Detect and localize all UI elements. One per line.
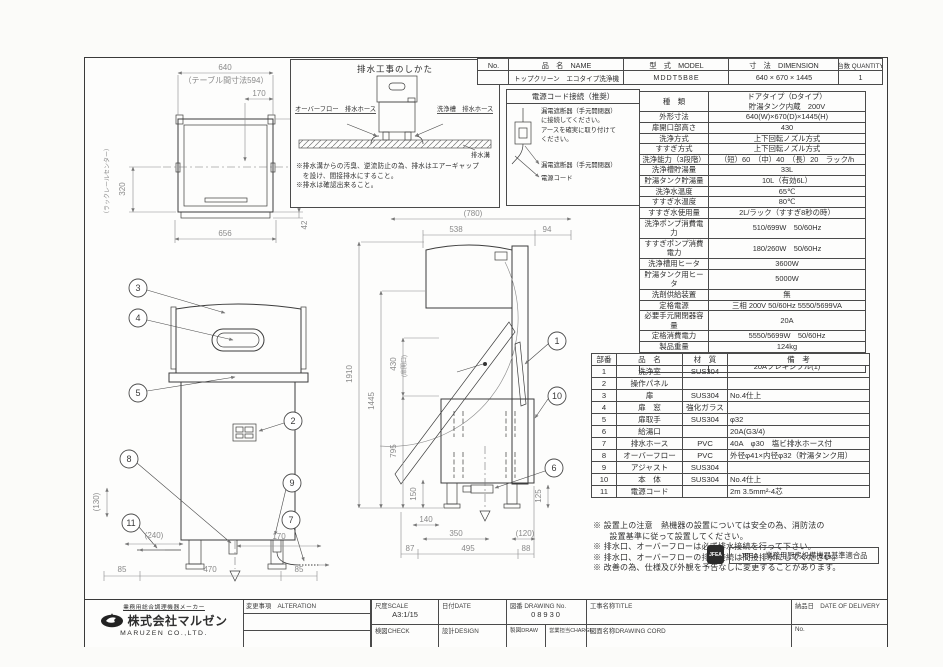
table-cell: PVC xyxy=(683,450,728,462)
table-cell: SUS304 xyxy=(683,474,728,486)
svg-text:2: 2 xyxy=(290,416,295,426)
table-cell: SUS304 xyxy=(683,462,728,474)
delivery-date-cell: 納品日 DATE OF DELIVERY xyxy=(791,600,887,624)
power-cord-box: 電源コード接続（推奨） 漏電遮断器（手元開閉器） に接続してください。 アースを… xyxy=(506,89,640,206)
table-cell: 8 xyxy=(592,450,617,462)
table-row: 外形寸法640(W)×670(D)×1445(H) xyxy=(640,112,866,123)
table-cell: 洗浄ポンプ消費電力 xyxy=(640,218,709,238)
side-view-dimensions: (780) 538 94 1910 1445 430 (扉開口) 795 150 xyxy=(345,209,571,559)
table-row: 洗浄水温度65℃ xyxy=(640,186,866,197)
table-row: 洗浄槽貯湯量33L xyxy=(640,165,866,176)
check-cell: 検図CHECK xyxy=(371,624,438,647)
note-line: ※排水溝からの汚臭、逆流防止の為、排水はエアーギャップ xyxy=(296,162,496,172)
table-row: すすぎ水使用量2L/ラック（すすぎ8秒の時） xyxy=(640,207,866,218)
table-cell: 2L/ラック（すすぎ8秒の時） xyxy=(709,207,866,218)
dim-1910: 1910 xyxy=(345,365,354,383)
dim-42: 42 xyxy=(300,220,309,229)
note-line: 設置基準に従って設置してください。 xyxy=(593,532,885,543)
svg-text:10: 10 xyxy=(552,391,562,401)
quantity-value: 1 xyxy=(838,70,883,85)
side-view-drawing: 1 10 6 (780) 538 94 1910 1445 430 (扉開口) xyxy=(335,206,607,598)
front-view-machine xyxy=(137,304,329,581)
table-cell: 扉取手 xyxy=(617,414,683,426)
callout-3: 3 xyxy=(129,279,147,297)
callout-9: 9 xyxy=(283,474,301,492)
dim-140: 140 xyxy=(419,515,433,524)
title-block: 業務用総合調理機器メーカー 株式会社マルゼン MARUZEN CO.,LTD. … xyxy=(85,599,887,647)
table-cell: 電源コード xyxy=(617,486,683,498)
dim-85-left: 85 xyxy=(118,565,127,574)
table-cell: 定格消費電力 xyxy=(640,331,709,342)
table-cell: 510/699W 50/60Hz xyxy=(709,218,866,238)
callout-6: 6 xyxy=(545,459,563,477)
table-row: 洗浄槽用ヒータ3600W xyxy=(640,259,866,270)
table-cell: 124kg xyxy=(709,342,866,353)
table-row: 定格電源三相 200V 50/60Hz 5550/5699VA xyxy=(640,300,866,311)
dim-795: 795 xyxy=(389,444,398,458)
table-row: すすぎ方式上下回転ノズル方式 xyxy=(640,144,866,155)
table-cell: 洗浄槽貯湯量 xyxy=(640,165,709,176)
table-cell: 430 xyxy=(709,122,866,133)
table-cell: SUS304 xyxy=(683,366,728,378)
model-number: MDDT5B8E xyxy=(623,70,730,85)
table-row: 3扉SUS304No.4仕上 xyxy=(592,390,870,402)
construction-title-label: 工事名称TITLE xyxy=(590,601,788,610)
alteration-label: 変更事項 ALTERATION xyxy=(243,600,370,614)
table-row: 6給湯口20A(G3/4) xyxy=(592,426,870,438)
table-row: 洗剤供給装置無 xyxy=(640,289,866,300)
drawing-cord-label: 図面名称DRAWING CORD xyxy=(590,626,788,635)
table-cell: ドアタイプ（Dタイプ） 貯湯タンク内蔵 200V xyxy=(709,92,866,112)
alteration-row-2 xyxy=(243,631,370,648)
svg-text:9: 9 xyxy=(289,478,294,488)
callout-11: 11 xyxy=(122,514,140,532)
power-box-body-text: 漏電遮断器（手元開閉器） に接続してください。 アースを確実に取り付けて くださ… xyxy=(541,107,637,145)
dim-656: 656 xyxy=(218,229,232,238)
table-row: 洗浄能力（3段階）（短）60 （中）40 （長）20 ラック/h xyxy=(640,154,866,165)
table-row: 8オーバーフローPVC外径φ41×内径φ32（貯湯タンク用） xyxy=(592,450,870,462)
svg-text:3: 3 xyxy=(135,283,140,293)
table-cell xyxy=(728,366,870,378)
table-cell: 10L（有効6L） xyxy=(709,176,866,187)
table-cell: No.4仕上 xyxy=(728,474,870,486)
scale-label: 尺度SCALE xyxy=(375,601,435,610)
dim-85-right: 85 xyxy=(295,565,304,574)
dim-240: (240) xyxy=(145,531,164,540)
dim-538: 538 xyxy=(449,225,463,234)
table-cell: 外径φ41×内径φ32（貯湯タンク用） xyxy=(728,450,870,462)
maker-tagline: 業務用総合調理機器メーカー xyxy=(85,602,243,611)
dim-780: (780) xyxy=(464,209,483,218)
svg-text:7: 7 xyxy=(288,515,293,525)
table-cell: 洗浄室 xyxy=(617,366,683,378)
table-row: 9アジャストSUS304 xyxy=(592,462,870,474)
note-line: ※ 設置上の注意 熱機器の設置については安全の為、消防法の xyxy=(593,521,885,532)
table-cell: 6 xyxy=(592,426,617,438)
side-view-callouts: 1 10 6 xyxy=(495,332,566,488)
dim-130: (130) xyxy=(92,492,101,511)
table-cell: 20A xyxy=(709,311,866,331)
table-cell xyxy=(728,402,870,414)
table-cell: 洗浄方式 xyxy=(640,133,709,144)
parts-table: 部番品 名材 質備 考1洗浄室SUS3042操作パネル3扉SUS304No.4仕… xyxy=(591,353,870,498)
table-cell: 1 xyxy=(592,366,617,378)
dim-170-front: 170 xyxy=(272,532,286,541)
dim-150: 150 xyxy=(409,487,418,501)
name-plate-table: No. 品 名 NAME 型 式 MODEL 寸 法 DIMENSION 台数 … xyxy=(477,58,881,83)
svg-text:1: 1 xyxy=(554,336,559,346)
dim-640: 640 xyxy=(218,63,232,72)
callout-7: 7 xyxy=(282,511,300,529)
table-cell: 上下回転ノズル方式 xyxy=(709,133,866,144)
table-cell: SUS304 xyxy=(683,390,728,402)
value-no xyxy=(477,70,510,85)
svg-text:5: 5 xyxy=(135,388,140,398)
column-header: 品 名 xyxy=(617,354,683,366)
table-row: 洗浄ポンプ消費電力510/699W 50/60Hz xyxy=(640,218,866,238)
table-cell: 貯湯タンク貯湯量 xyxy=(640,176,709,187)
svg-text:11: 11 xyxy=(126,518,135,528)
washtank-hose-label: 洗浄槽 排水ホース xyxy=(437,104,493,114)
table-cell: 排水ホース xyxy=(617,438,683,450)
column-header: 備 考 xyxy=(728,354,870,366)
dim-170: 170 xyxy=(252,89,266,98)
table-cell: 65℃ xyxy=(709,186,866,197)
table-cell: 5550/5699W 50/60Hz xyxy=(709,331,866,342)
column-header: 材 質 xyxy=(683,354,728,366)
gutter-label: 排水溝 xyxy=(471,150,490,159)
company-name-en: MARUZEN CO.,LTD. xyxy=(85,630,243,637)
callout-1: 1 xyxy=(548,332,566,350)
top-view-machine-outline xyxy=(163,103,289,218)
table-row: 11電源コード2m 3.5mm²-4芯 xyxy=(592,486,870,498)
dim-495: 495 xyxy=(461,544,475,553)
table-cell: 洗剤供給装置 xyxy=(640,289,709,300)
svg-text:8: 8 xyxy=(126,454,131,464)
table-cell: オーバーフロー xyxy=(617,450,683,462)
table-cell: すすぎ水使用量 xyxy=(640,207,709,218)
callout-4: 4 xyxy=(129,309,147,327)
table-row: 扉開口部高さ430 xyxy=(640,122,866,133)
drain-box-figure xyxy=(291,74,499,158)
draw-label: 製図DRAW xyxy=(510,626,542,634)
table-cell xyxy=(683,426,728,438)
table-row: 2操作パネル xyxy=(592,378,870,390)
table-cell: （短）60 （中）40 （長）20 ラック/h xyxy=(709,154,866,165)
table-cell: 定格電源 xyxy=(640,300,709,311)
table-cell: 5000W xyxy=(709,269,866,289)
table-cell: 20A(G3/4) xyxy=(728,426,870,438)
rack-rail-center-label: （ラックレールセンター） xyxy=(103,145,111,217)
dim-87: 87 xyxy=(406,544,415,553)
maruzen-bird-logo xyxy=(100,613,124,628)
dimension-value: 640 × 670 × 1445 xyxy=(728,70,840,85)
power-box-title: 電源コード接続（推奨） xyxy=(507,90,639,104)
date-label: 日付DATE xyxy=(442,601,503,610)
front-view-callouts: 3 4 5 2 8 11 9 7 xyxy=(120,279,304,561)
table-cell: 外形寸法 xyxy=(640,112,709,123)
table-cell: No.4仕上 xyxy=(728,390,870,402)
table-row: 7排水ホースPVC40A φ30 塩ビ排水ホース付 xyxy=(592,438,870,450)
table-cell: φ32 xyxy=(728,414,870,426)
table-cell: 3600W xyxy=(709,259,866,270)
table-cell: 640(W)×670(D)×1445(H) xyxy=(709,112,866,123)
table-row: 10本 体SUS304No.4仕上 xyxy=(592,474,870,486)
note-line: ※排水は確認出来ること。 xyxy=(296,181,496,191)
spec-table: 種 類ドアタイプ（Dタイプ） 貯湯タンク内蔵 200V外形寸法640(W)×67… xyxy=(639,91,866,373)
delivery-no-cell: No. xyxy=(791,624,887,647)
dim-125: 125 xyxy=(534,489,543,503)
drain-box-notes: ※排水溝からの汚臭、逆流防止の為、排水はエアーギャップ を設け、間接排水にするこ… xyxy=(296,162,496,191)
table-row: すすぎポンプ消費電力180/260W 50/60Hz xyxy=(640,238,866,258)
table-cell: PVC xyxy=(683,438,728,450)
alteration-row-1 xyxy=(243,614,370,631)
jfea-seal-icon: JFEA xyxy=(707,545,724,564)
callout-8: 8 xyxy=(120,450,138,468)
table-cell: 扉 xyxy=(617,390,683,402)
front-view-drawing: 3 4 5 2 8 11 9 7 (130) (240) 170 85 470 … xyxy=(85,273,335,593)
table-cell: 操作パネル xyxy=(617,378,683,390)
table-header-row: 部番品 名材 質備 考 xyxy=(592,354,870,366)
table-cell: 80℃ xyxy=(709,197,866,208)
table-cell: 洗浄能力（3段階） xyxy=(640,154,709,165)
table-row: 貯湯タンク用ヒータ5000W xyxy=(640,269,866,289)
dim-88: 88 xyxy=(522,544,531,553)
table-cell: 40A φ30 塩ビ排水ホース付 xyxy=(728,438,870,450)
table-cell: 3 xyxy=(592,390,617,402)
table-row: 1洗浄室SUS304 xyxy=(592,366,870,378)
top-view-dimensions: 640 （テーブル間寸法594） 170 670 42 656 320 （ラック… xyxy=(103,63,309,243)
table-cell: 4 xyxy=(592,402,617,414)
table-cell: 2 xyxy=(592,378,617,390)
delivery-no-label: No. xyxy=(795,626,884,633)
front-view-dimensions: (130) (240) 170 85 470 85 xyxy=(92,488,321,581)
table-cell xyxy=(683,378,728,390)
table-row: すすぎ水温度80℃ xyxy=(640,197,866,208)
drain-work-box: 排水工事のしかた オーバーフロー 排水ホース 洗浄槽 排水ホース 排水溝 ※排水… xyxy=(290,59,500,208)
draw-cell: 製図DRAW xyxy=(506,624,545,647)
table-cell: すすぎポンプ消費電力 xyxy=(640,238,709,258)
table-cell: 上下回転ノズル方式 xyxy=(709,144,866,155)
svg-text:4: 4 xyxy=(135,313,140,323)
date-cell: 日付DATE xyxy=(438,600,506,624)
charge-cell: 営業担当CHARGE xyxy=(545,624,586,647)
table-cell: 種 類 xyxy=(640,92,709,112)
table-cell xyxy=(728,462,870,474)
drawing-page: { "title_strip": { "col_no": "No.", "col… xyxy=(0,0,943,667)
charge-label: 営業担当CHARGE xyxy=(549,626,583,634)
column-header: 部番 xyxy=(592,354,617,366)
table-cell: 必要手元開閉器容量 xyxy=(640,311,709,331)
construction-title-cell: 工事名称TITLE xyxy=(586,600,791,624)
note-line: を設け、間接排水にすること。 xyxy=(296,172,496,182)
scale-cell: 尺度SCALE A3:1/15 xyxy=(371,600,438,624)
table-cell: 5 xyxy=(592,414,617,426)
svg-text:6: 6 xyxy=(551,463,556,473)
dim-320: 320 xyxy=(118,182,127,196)
table-row: 4扉 窓強化ガラス xyxy=(592,402,870,414)
drawing-no-value: 08930 xyxy=(510,610,583,619)
dim-120: (120) xyxy=(516,529,535,538)
company-name-jp: 株式会社マルゼン xyxy=(127,612,227,629)
table-cell: SUS304 xyxy=(683,414,728,426)
table-cell: 2m 3.5mm²-4芯 xyxy=(728,486,870,498)
power-cord-label: 電源コード xyxy=(541,173,572,182)
overflow-hose-label: オーバーフロー 排水ホース xyxy=(295,104,376,114)
company-cell: 業務用総合調理機器メーカー 株式会社マルゼン MARUZEN CO.,LTD. xyxy=(85,600,244,647)
table-cell: 本 体 xyxy=(617,474,683,486)
design-label: 設計DESIGN xyxy=(442,626,503,635)
callout-10: 10 xyxy=(548,387,566,405)
table-cell: 製品重量 xyxy=(640,342,709,353)
breaker-label: 漏電遮断器（手元開閉器） xyxy=(541,160,617,169)
table-cell: 11 xyxy=(592,486,617,498)
table-row: 必要手元開閉器容量20A xyxy=(640,311,866,331)
door-opening-label: (扉開口) xyxy=(400,355,408,377)
product-name: トップクリーン エコタイプ洗浄機 xyxy=(508,70,625,85)
table-cell: 洗浄水温度 xyxy=(640,186,709,197)
table-row: 製品重量124kg xyxy=(640,342,866,353)
callout-2: 2 xyxy=(284,412,302,430)
dim-430: 430 xyxy=(389,357,398,371)
table-row: 貯湯タンク貯湯量10L（有効6L） xyxy=(640,176,866,187)
table-cell: 三相 200V 50/60Hz 5550/5699VA xyxy=(709,300,866,311)
drawing-cord-cell: 図面名称DRAWING CORD xyxy=(586,624,791,647)
table-row: 5扉取手SUS304φ32 xyxy=(592,414,870,426)
table-cell: 9 xyxy=(592,462,617,474)
callout-5: 5 xyxy=(129,384,147,402)
dim-94: 94 xyxy=(543,225,552,234)
drawing-sheet-frame: 640 （テーブル間寸法594） 170 670 42 656 320 （ラック… xyxy=(84,57,888,647)
table-cell: 洗浄槽用ヒータ xyxy=(640,259,709,270)
note-line: ※ 改善の為、仕様及び外観を予告なしに変更することがあります。 xyxy=(593,563,885,574)
table-row: 定格消費電力5550/5699W 50/60Hz xyxy=(640,331,866,342)
dim-470: 470 xyxy=(203,565,217,574)
table-cell: 7 xyxy=(592,438,617,450)
dim-350: 350 xyxy=(449,529,463,538)
table-row: 洗浄方式上下回転ノズル方式 xyxy=(640,133,866,144)
alteration-cell: 変更事項 ALTERATION xyxy=(243,600,371,647)
table-cell: 貯湯タンク用ヒータ xyxy=(640,269,709,289)
table-cell: 無 xyxy=(709,289,866,300)
drawing-no-cell: 図番 DRAWING No. 08930 xyxy=(506,600,586,624)
table-cell: 扉 窓 xyxy=(617,402,683,414)
jfea-certification-label: JFEA 業務用厨房設備機器基準適合品 xyxy=(729,547,879,564)
table-cell: すすぎ水温度 xyxy=(640,197,709,208)
table-cell xyxy=(728,378,870,390)
dim-1445: 1445 xyxy=(367,392,376,410)
table-cell: 33L xyxy=(709,165,866,176)
table-cell: 給湯口 xyxy=(617,426,683,438)
table-cell: すすぎ方式 xyxy=(640,144,709,155)
drawing-no-label: 図番 DRAWING No. xyxy=(510,601,583,610)
table-cell: 10 xyxy=(592,474,617,486)
table-cell: 180/260W 50/60Hz xyxy=(709,238,866,258)
scale-value: A3:1/15 xyxy=(375,610,435,619)
table-cell: 扉開口部高さ xyxy=(640,122,709,133)
check-label: 検図CHECK xyxy=(375,626,435,635)
dim-table-594: （テーブル間寸法594） xyxy=(184,75,269,85)
delivery-date-label: 納品日 DATE OF DELIVERY xyxy=(795,601,884,610)
table-cell xyxy=(683,486,728,498)
table-row: 種 類ドアタイプ（Dタイプ） 貯湯タンク内蔵 200V xyxy=(640,92,866,112)
design-cell: 設計DESIGN xyxy=(438,624,506,647)
table-cell: 強化ガラス xyxy=(683,402,728,414)
table-cell: アジャスト xyxy=(617,462,683,474)
